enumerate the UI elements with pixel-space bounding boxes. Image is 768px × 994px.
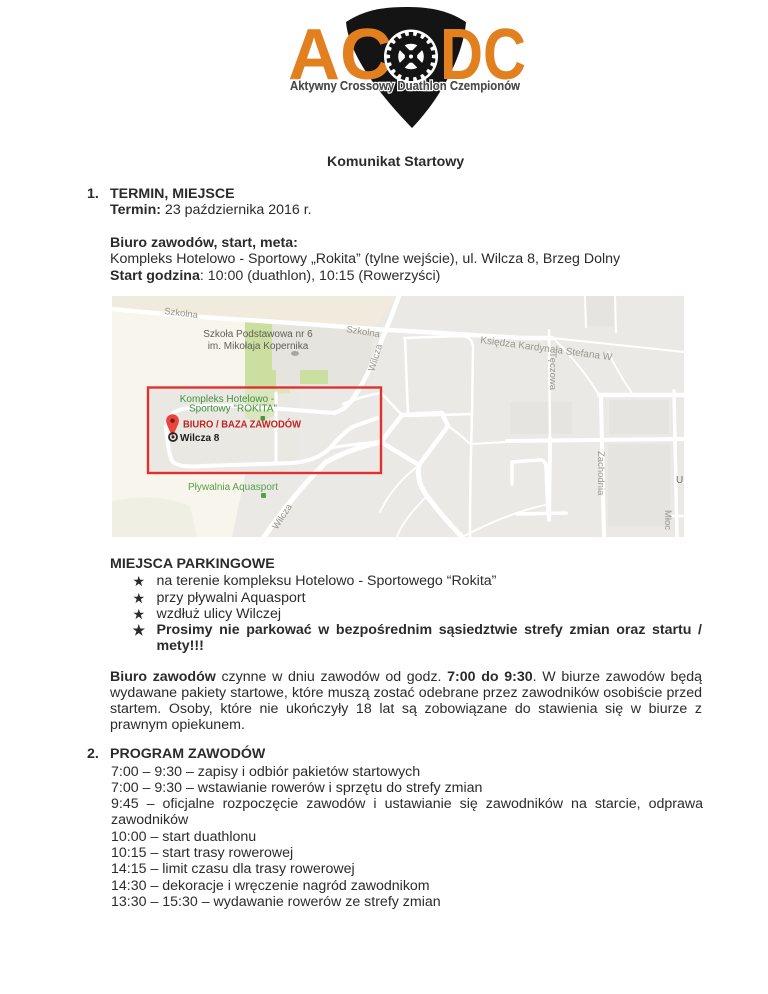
svg-text:U: U [676,475,683,486]
svg-text:Tęczowa: Tęczowa [547,352,558,391]
svg-text:Szkoła Podstawowa nr 6: Szkoła Podstawowa nr 6 [203,329,313,340]
svg-text:im. Mikołaja Kopernika: im. Mikołaja Kopernika [208,341,309,352]
svg-text:Wilcza 8: Wilcza 8 [180,433,220,444]
svg-text:Pływalnia Aquasport: Pływalnia Aquasport [188,482,278,493]
svg-text:Zachodnia: Zachodnia [595,451,606,496]
svg-text:Aktywny Crossowy Duathlon Czem: Aktywny Crossowy Duathlon Czempionów [290,79,520,93]
svg-text:Młoc: Młoc [662,510,673,530]
svg-text:BIURO / BAZA ZAWODÓW: BIURO / BAZA ZAWODÓW [183,419,302,431]
svg-text:Sportowy "ROKITA": Sportowy "ROKITA" [189,404,277,415]
